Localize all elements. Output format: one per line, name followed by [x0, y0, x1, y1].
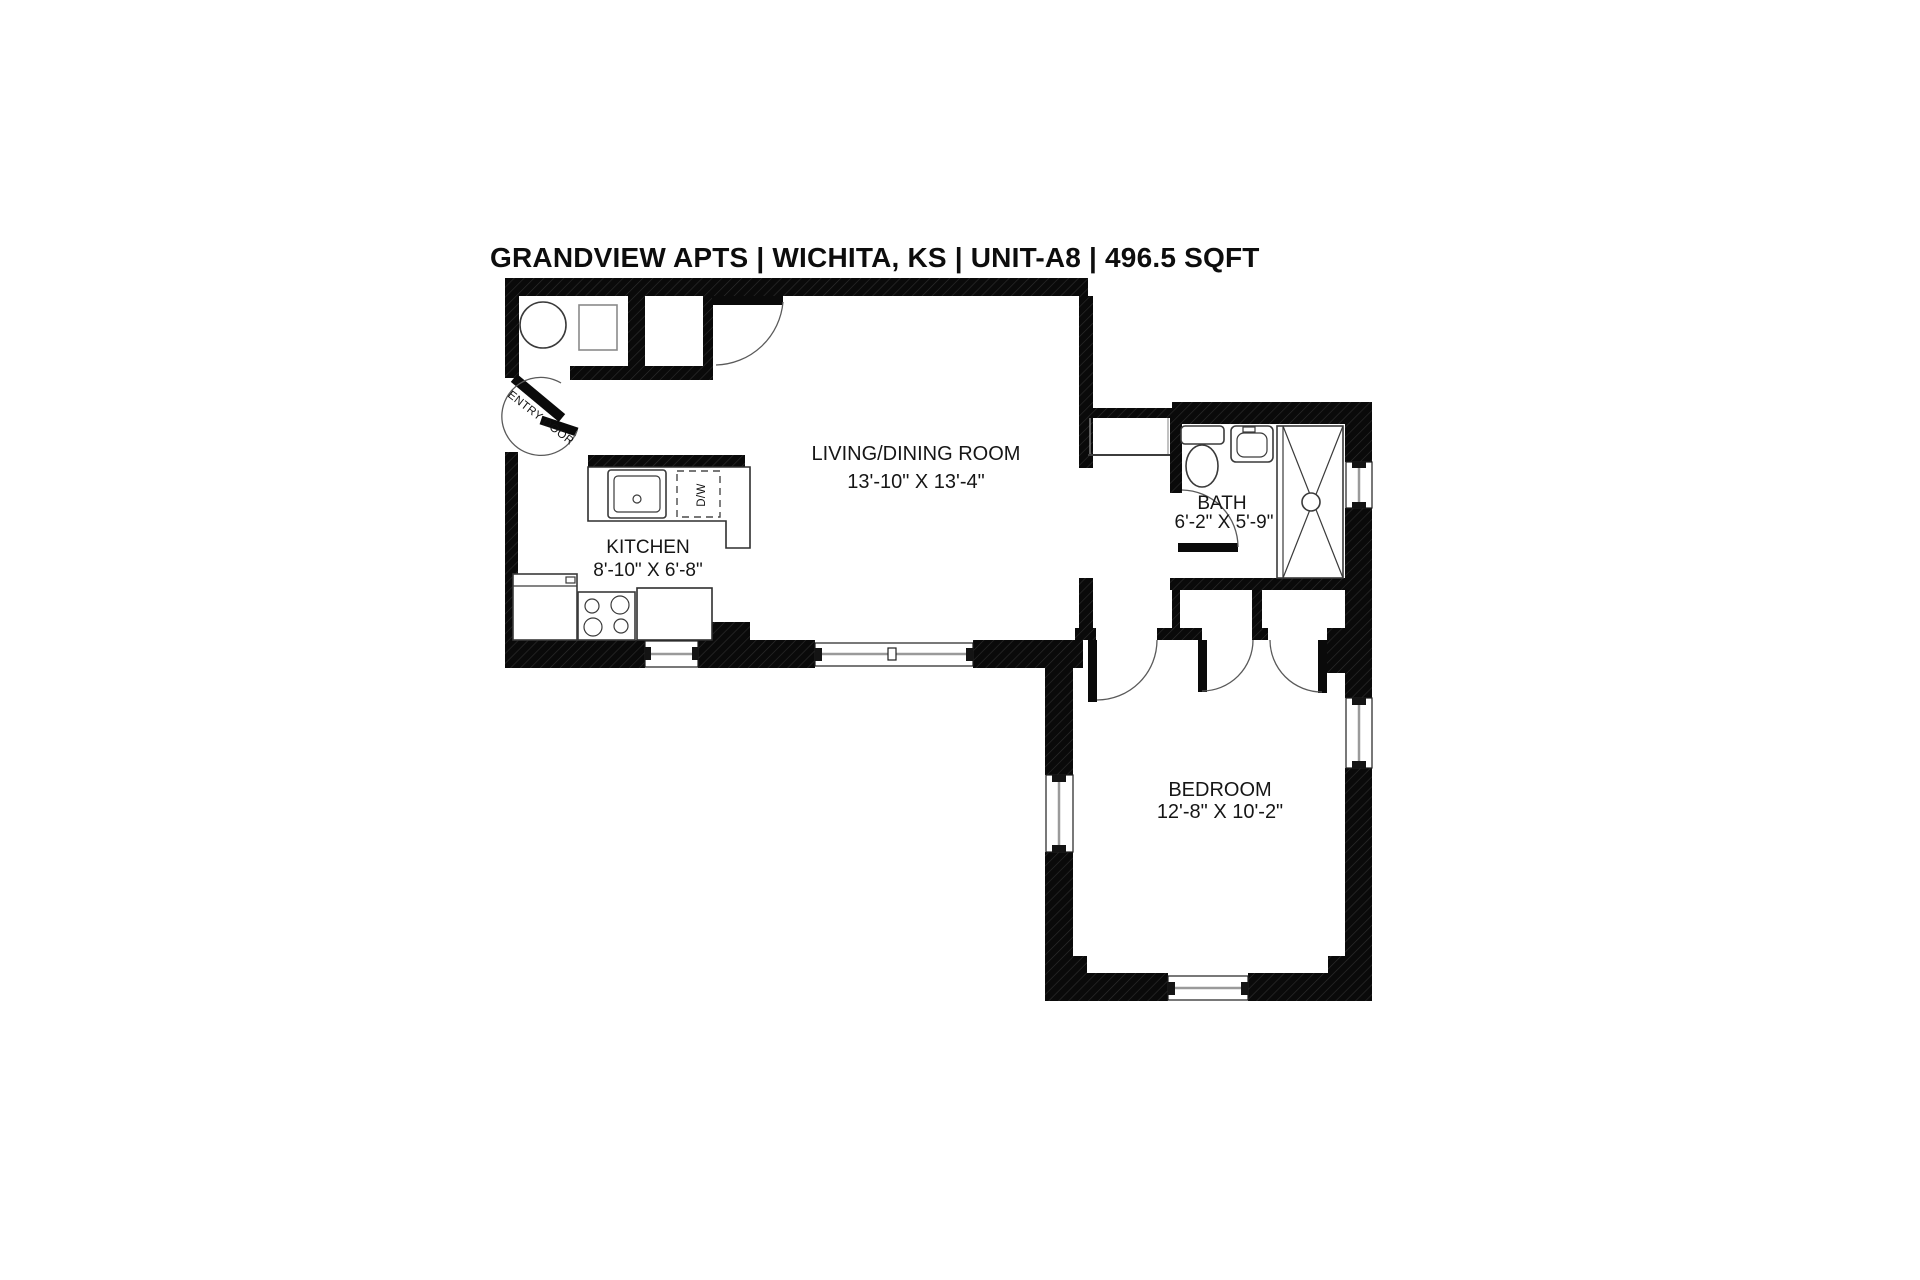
- wall-closet-hall-divider: [1252, 590, 1262, 628]
- living-dining-room-dimensions: 13'-10" X 13'-4": [847, 471, 984, 493]
- wall-closet-right: [703, 288, 713, 374]
- wall-step-left: [1073, 956, 1087, 974]
- shower-drain: [1302, 493, 1320, 511]
- wall-right-upper: [1345, 402, 1372, 462]
- bath-label: BATH: [1197, 493, 1246, 514]
- floor-plan: GRANDVIEW APTS | WICHITA, KS | UNIT-A8 |…: [0, 0, 1920, 1280]
- wall-bedroom-bottom-right: [1248, 973, 1372, 1001]
- wall-bath-bottom: [1170, 578, 1345, 590]
- wall-south-mid: [698, 640, 815, 668]
- kitchen-sink: [608, 470, 666, 518]
- wall-bath-left: [1170, 418, 1182, 493]
- wall-bedroom-top-b: [1157, 628, 1202, 640]
- floor-plan-page: GRANDVIEW APTS | WICHITA, KS | UNIT-A8 |…: [0, 0, 1920, 1280]
- window-living-south: [815, 643, 973, 666]
- toilet-tank: [1181, 426, 1224, 444]
- wall-right-lower: [1345, 768, 1372, 978]
- bathroom-door-leaf: [1178, 543, 1238, 552]
- page-background: [0, 0, 1920, 1280]
- kitchen-base-cabinet: [637, 588, 712, 640]
- shower: [1277, 426, 1343, 578]
- bedroom-closet-door-right-leaf: [1318, 640, 1327, 693]
- window-bedroom-right: [1346, 698, 1372, 768]
- kitchen-label: KITCHEN: [606, 537, 689, 558]
- wall-right-mid: [1345, 508, 1372, 698]
- wall-bedroom-left-upper: [1045, 667, 1073, 775]
- wall-top: [505, 278, 1088, 296]
- wall-living-right: [1079, 296, 1093, 468]
- window-bedroom-south: [1168, 976, 1248, 1000]
- wall-bedroom-top-c: [1252, 628, 1268, 640]
- kitchen-dimensions: 8'-10" X 6'-8": [593, 560, 702, 581]
- living-dining-room-label: LIVING/DINING ROOM: [812, 443, 1021, 465]
- wall-utility-divider: [628, 278, 645, 378]
- window-bath-right: [1346, 462, 1372, 508]
- wall-left-upper: [505, 278, 519, 378]
- window-kitchen-south: [645, 641, 698, 667]
- closet-door-leaf: [712, 296, 783, 305]
- bedroom-label: BEDROOM: [1168, 779, 1271, 801]
- refrigerator: [513, 574, 577, 640]
- bedroom-door-leaf: [1088, 640, 1097, 702]
- water-heater: [520, 302, 566, 348]
- furnace-unit: [579, 305, 617, 350]
- wall-south-kitchen: [505, 640, 645, 668]
- wall-kitchen-counter-back: [588, 455, 745, 467]
- wall-step-right: [1328, 956, 1345, 974]
- bath-dimensions: 6'-2" X 5'-9": [1175, 512, 1274, 533]
- wall-utility-bottom: [570, 366, 713, 380]
- window-bedroom-left: [1046, 775, 1073, 852]
- bedroom-closet-door-left-leaf: [1198, 640, 1207, 692]
- wall-bath-top: [1172, 402, 1372, 424]
- wall-bedroom-top-a: [1075, 628, 1096, 640]
- wall-nook-top: [1087, 408, 1172, 418]
- wall-bedroom-left-lower: [1045, 852, 1073, 973]
- wall-bath-hall: [1172, 590, 1180, 628]
- page-title: GRANDVIEW APTS | WICHITA, KS | UNIT-A8 |…: [490, 242, 1260, 273]
- toilet-bowl: [1186, 445, 1218, 487]
- wall-bedroom-bottom-left: [1045, 973, 1168, 1001]
- dishwasher-label: D/W: [696, 483, 708, 507]
- bedroom-dimensions: 12'-8" X 10'-2": [1157, 801, 1283, 823]
- wall-south-living: [973, 640, 1083, 668]
